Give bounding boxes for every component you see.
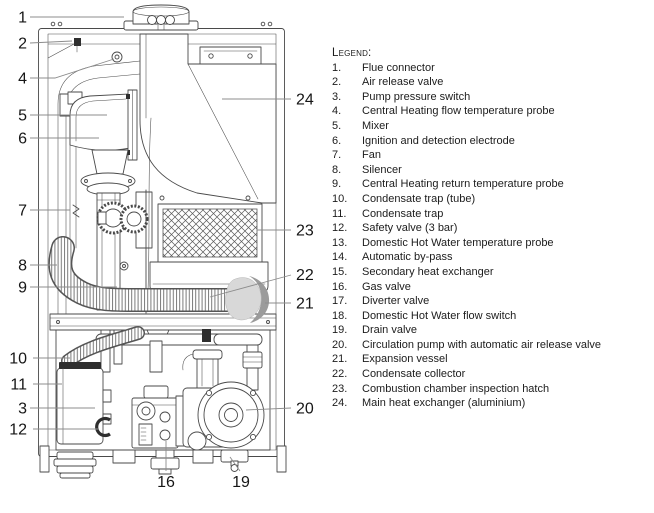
union-nut — [243, 352, 262, 368]
flue-connector — [124, 5, 198, 30]
legend-item-15: 15.Secondary heat exchanger — [332, 265, 650, 280]
legend-item-label: Gas valve — [362, 280, 650, 295]
legend-item-label: Combustion chamber inspection hatch — [362, 382, 650, 397]
legend-item-number: 11. — [332, 207, 362, 222]
legend-list: 1.Flue connector 2.Air release valve 3.P… — [332, 61, 650, 411]
callout-16: 16 — [157, 474, 175, 491]
legend-title: Legend: — [332, 46, 650, 61]
legend-item-number: 14. — [332, 250, 362, 265]
legend-item-label: Main heat exchanger (aluminium) — [362, 396, 650, 411]
legend-item-11: 11.Condensate trap — [332, 207, 650, 222]
legend-item-label: Flue connector — [362, 61, 650, 76]
boiler-exploded-view-page: 1 2 4 5 6 7 8 9 10 11 3 12 24 23 22 21 2… — [0, 0, 654, 513]
ch-flow-probe — [112, 52, 122, 62]
legend-item-label: Condensate collector — [362, 367, 650, 382]
legend-item-label: Drain valve — [362, 323, 650, 338]
callout-19: 19 — [232, 474, 250, 491]
legend-item-number: 8. — [332, 163, 362, 178]
callout-20: 20 — [296, 401, 314, 418]
callout-8: 8 — [18, 258, 27, 275]
legend-item-number: 21. — [332, 352, 362, 367]
legend-item-label: Domestic Hot Water temperature probe — [362, 236, 650, 251]
legend-item-20: 20.Circulation pump with automatic air r… — [332, 338, 650, 353]
legend-item-21: 21.Expansion vessel — [332, 352, 650, 367]
legend-item-number: 16. — [332, 280, 362, 295]
legend-item-12: 12.Safety valve (3 bar) — [332, 221, 650, 236]
legend-item-22: 22.Condensate collector — [332, 367, 650, 382]
legend-item-number: 23. — [332, 382, 362, 397]
legend-item-number: 20. — [332, 338, 362, 353]
legend-item-label: Secondary heat exchanger — [362, 265, 650, 280]
legend-item-label: Central Heating return temperature probe — [362, 177, 650, 192]
legend-item-23: 23.Combustion chamber inspection hatch — [332, 382, 650, 397]
callout-10: 10 — [9, 351, 27, 368]
legend-item-number: 2. — [332, 75, 362, 90]
callout-12: 12 — [9, 422, 27, 439]
legend-item-label: Ignition and detection electrode — [362, 134, 650, 149]
legend-item-number: 4. — [332, 104, 362, 119]
right-foot — [277, 446, 286, 472]
legend-item-number: 10. — [332, 192, 362, 207]
callout-7: 7 — [18, 203, 27, 220]
callout-21: 21 — [296, 296, 314, 313]
left-foot — [40, 446, 49, 472]
callout-5: 5 — [18, 108, 27, 125]
legend-item-number: 17. — [332, 294, 362, 309]
legend-item-number: 19. — [332, 323, 362, 338]
callout-3: 3 — [18, 401, 27, 418]
legend-item-number: 7. — [332, 148, 362, 163]
legend: Legend: 1.Flue connector 2.Air release v… — [332, 46, 650, 411]
legend-item-2: 2.Air release valve — [332, 75, 650, 90]
legend-item-number: 13. — [332, 236, 362, 251]
legend-item-17: 17.Diverter valve — [332, 294, 650, 309]
legend-item-label: Fan — [362, 148, 650, 163]
legend-item-number: 1. — [332, 61, 362, 76]
legend-item-8: 8.Silencer — [332, 163, 650, 178]
legend-item-6: 6.Ignition and detection electrode — [332, 134, 650, 149]
legend-item-number: 6. — [332, 134, 362, 149]
legend-item-label: Silencer — [362, 163, 650, 178]
legend-item-label: Circulation pump with automatic air rele… — [362, 338, 650, 353]
condensate-trap — [57, 362, 111, 444]
legend-item-1: 1.Flue connector — [332, 61, 650, 76]
callout-1: 1 — [18, 10, 27, 27]
legend-item-number: 9. — [332, 177, 362, 192]
legend-item-label: Expansion vessel — [362, 352, 650, 367]
trap-drain-bellows — [54, 452, 96, 478]
callout-11: 11 — [10, 377, 27, 394]
inspection-hatch — [158, 196, 262, 262]
return-probe-fitting — [120, 262, 128, 270]
legend-item-7: 7.Fan — [332, 148, 650, 163]
legend-item-5: 5.Mixer — [332, 119, 650, 134]
legend-item-3: 3.Pump pressure switch — [332, 90, 650, 105]
legend-item-label: Central Heating flow temperature probe — [362, 104, 650, 119]
legend-item-number: 5. — [332, 119, 362, 134]
legend-item-label: Condensate trap (tube) — [362, 192, 650, 207]
legend-item-10: 10.Condensate trap (tube) — [332, 192, 650, 207]
legend-item-number: 22. — [332, 367, 362, 382]
legend-item-14: 14.Automatic by-pass — [332, 250, 650, 265]
legend-item-label: Safety valve (3 bar) — [362, 221, 650, 236]
callout-9: 9 — [18, 280, 27, 297]
legend-item-16: 16.Gas valve — [332, 280, 650, 295]
legend-item-9: 9.Central Heating return temperature pro… — [332, 177, 650, 192]
legend-item-label: Mixer — [362, 119, 650, 134]
legend-item-label: Domestic Hot Water flow switch — [362, 309, 650, 324]
callout-22: 22 — [296, 267, 314, 284]
callout-6: 6 — [18, 131, 27, 148]
legend-item-number: 3. — [332, 90, 362, 105]
legend-item-19: 19.Drain valve — [332, 323, 650, 338]
callout-2: 2 — [18, 36, 27, 53]
callout-23: 23 — [296, 223, 314, 240]
legend-item-13: 13.Domestic Hot Water temperature probe — [332, 236, 650, 251]
legend-item-24: 24.Main heat exchanger (aluminium) — [332, 396, 650, 411]
boiler-diagram: 1 2 4 5 6 7 8 9 10 11 3 12 24 23 22 21 2… — [0, 0, 330, 513]
drain-valve — [221, 450, 248, 462]
legend-item-4: 4.Central Heating flow temperature probe — [332, 104, 650, 119]
legend-item-number: 24. — [332, 396, 362, 411]
legend-item-18: 18.Domestic Hot Water flow switch — [332, 309, 650, 324]
legend-item-label: Diverter valve — [362, 294, 650, 309]
legend-item-label: Automatic by-pass — [362, 250, 650, 265]
sensor-block — [202, 329, 211, 342]
callout-24: 24 — [296, 92, 314, 109]
legend-item-label: Condensate trap — [362, 207, 650, 222]
legend-item-number: 18. — [332, 309, 362, 324]
legend-item-number: 15. — [332, 265, 362, 280]
legend-item-label: Air release valve — [362, 75, 650, 90]
legend-item-label: Pump pressure switch — [362, 90, 650, 105]
callout-4: 4 — [18, 71, 27, 88]
legend-item-number: 12. — [332, 221, 362, 236]
